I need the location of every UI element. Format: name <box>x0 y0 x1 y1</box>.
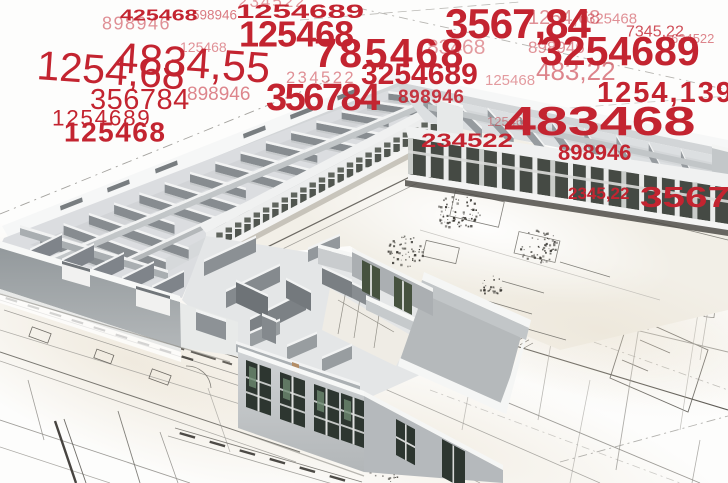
svg-text:125468: 125468 <box>485 72 535 89</box>
svg-text:234522: 234522 <box>421 131 513 152</box>
svg-text:898946: 898946 <box>102 14 171 34</box>
svg-text:125468: 125468 <box>64 117 166 148</box>
svg-text:898946: 898946 <box>398 87 464 108</box>
svg-text:898946: 898946 <box>187 84 250 105</box>
svg-text:234522: 234522 <box>286 69 356 87</box>
svg-text:898946: 898946 <box>558 140 631 165</box>
svg-text:898946: 898946 <box>528 38 585 57</box>
svg-text:598946: 598946 <box>192 8 237 23</box>
svg-text:83468: 83468 <box>427 36 485 59</box>
svg-text:3567: 3567 <box>640 182 728 214</box>
svg-text:2345,22: 2345,22 <box>568 184 629 203</box>
svg-text:483468: 483468 <box>504 98 695 144</box>
